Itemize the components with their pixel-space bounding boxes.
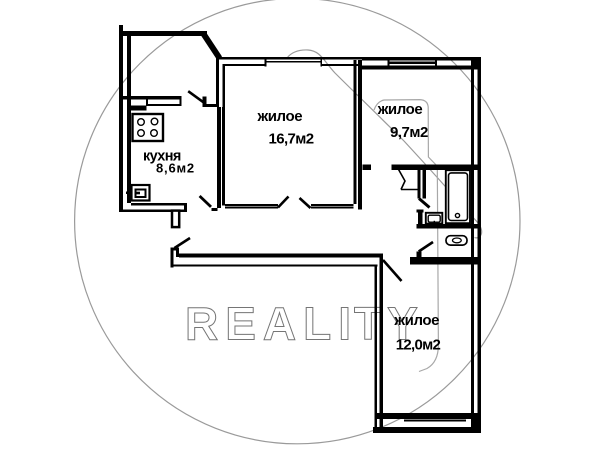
svg-text:8,6м2: 8,6м2 xyxy=(156,160,195,175)
svg-text:жилое: жилое xyxy=(393,312,439,329)
svg-text:жилое: жилое xyxy=(377,101,423,118)
svg-text:16,7м2: 16,7м2 xyxy=(269,131,314,148)
svg-text:жилое: жилое xyxy=(257,108,303,125)
svg-text:REALITY: REALITY xyxy=(185,298,425,350)
svg-text:12,0м2: 12,0м2 xyxy=(396,337,441,354)
svg-text:9,7м2: 9,7м2 xyxy=(390,124,428,141)
